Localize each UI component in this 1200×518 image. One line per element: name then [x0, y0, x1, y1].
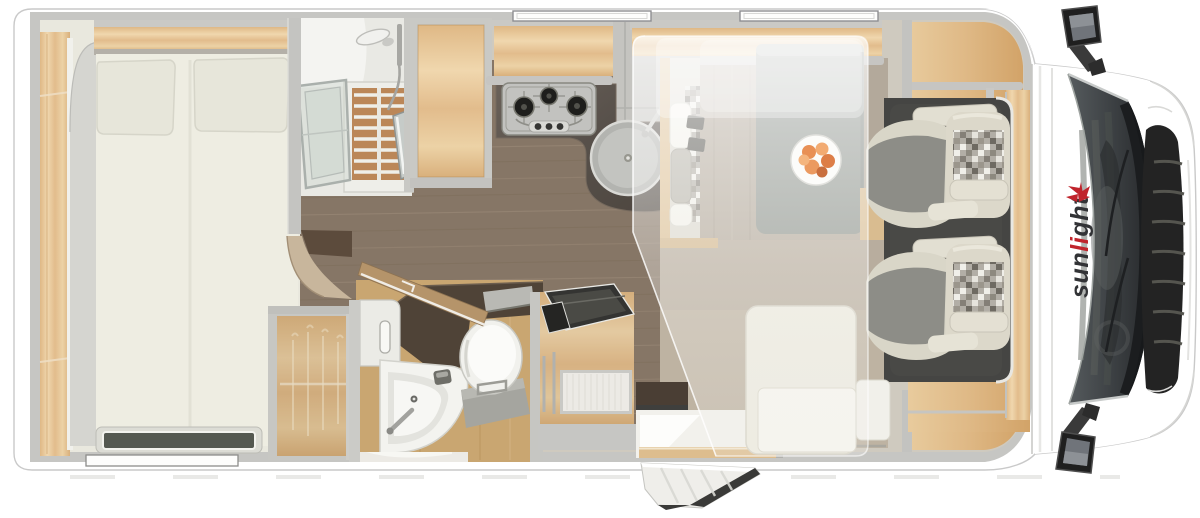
svg-text:sunlight: sunlight [1066, 195, 1094, 298]
